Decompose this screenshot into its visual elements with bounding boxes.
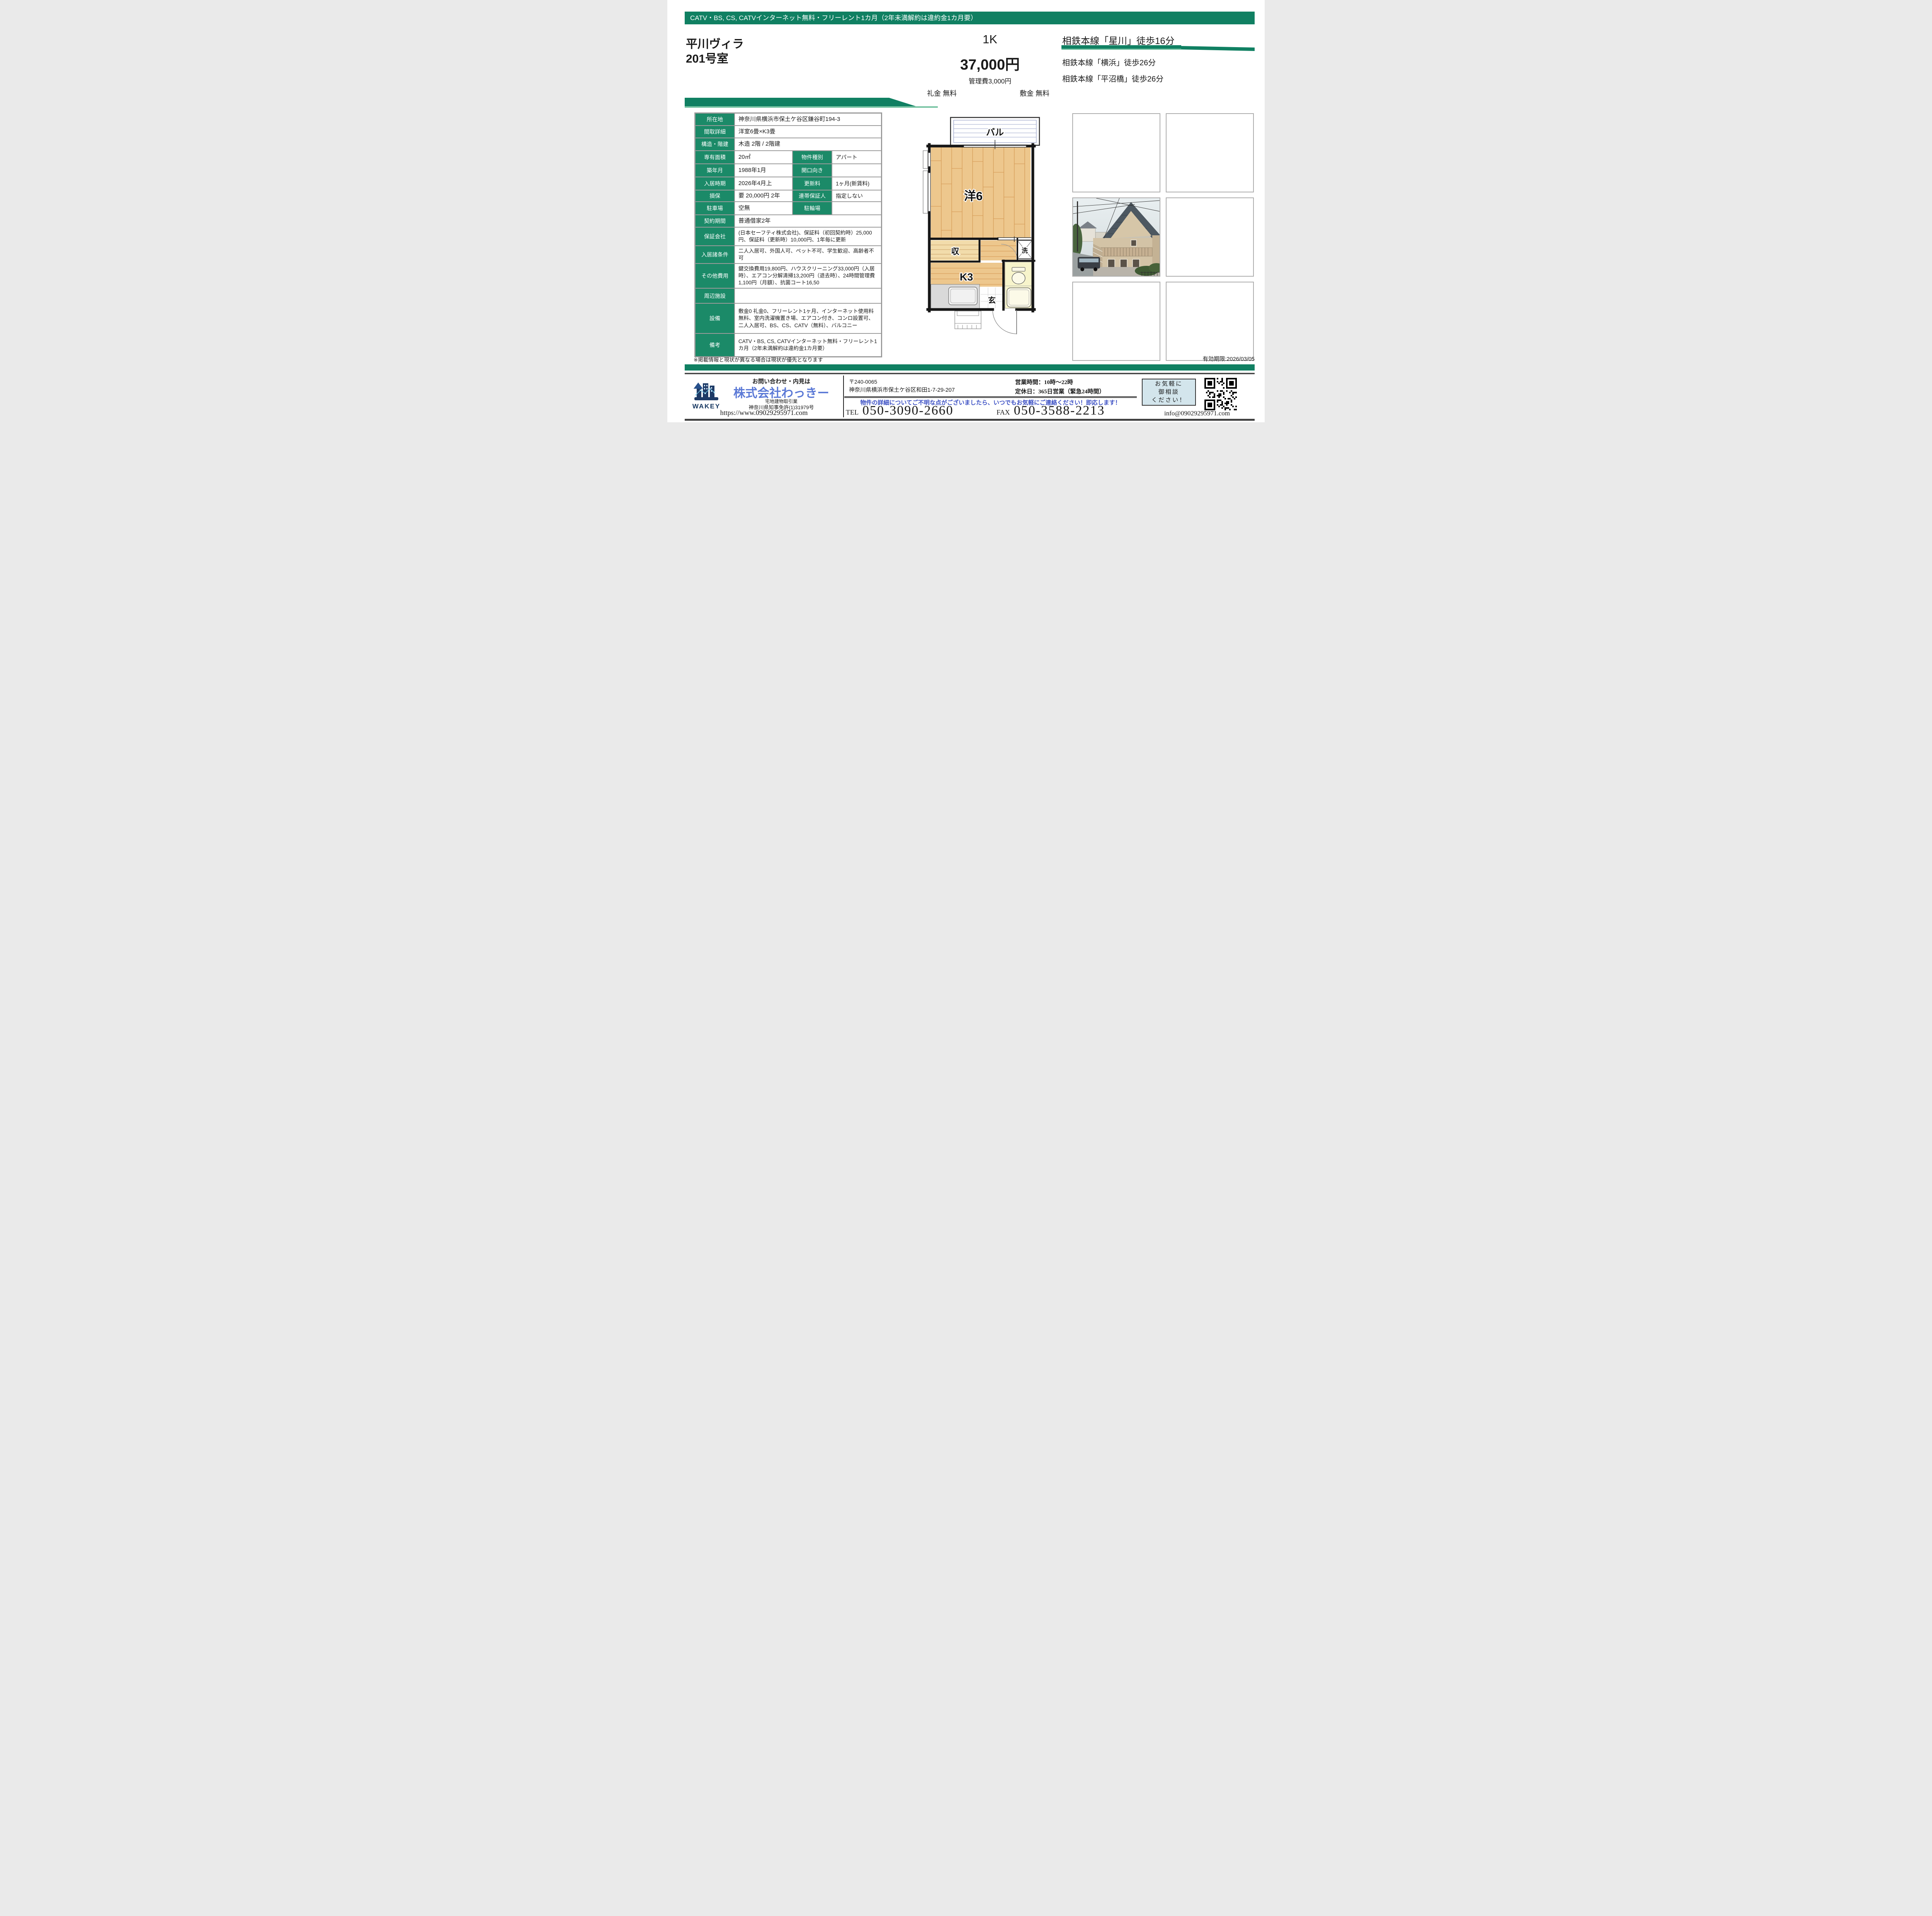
flyer-page: CATV・BS, CS, CATVインターネット無料・フリーレント1カ月（2年未… xyxy=(667,0,1265,422)
station-secondary: 相鉄本線「横浜」徒歩26分 xyxy=(1062,56,1156,68)
photo-slot-exterior xyxy=(1072,197,1160,277)
row-header: 築年月 xyxy=(696,164,734,177)
photo-slot-empty-2 xyxy=(1166,113,1254,192)
row-header: 周辺施設 xyxy=(696,289,734,303)
bottom-rule xyxy=(685,419,1255,421)
row-header: 設備 xyxy=(696,304,734,333)
row-value: (日本セーフティ株式会社)、保証料（初回契約時）25,000円、保証料（更新時）… xyxy=(735,228,881,245)
row-value: 洋室6畳×K3畳 xyxy=(735,126,881,138)
row-value: 神奈川県横浜市保土ケ谷区鎌谷町194-3 xyxy=(735,114,881,125)
property-name-line1: 平川ヴィラ xyxy=(686,37,744,52)
row-header: 所在地 xyxy=(696,114,734,125)
station-tertiary: 相鉄本線「平沼橋」徒歩26分 xyxy=(1062,73,1163,84)
closet-label: 収 xyxy=(951,247,960,256)
table-row: 入居時期2026年4月上更新料1ヶ月(新賃料) xyxy=(696,177,881,190)
property-photo xyxy=(1073,198,1160,276)
table-row: 契約期間普通借家2年 xyxy=(696,215,881,227)
row-value: 空無 xyxy=(735,202,792,214)
row-value: 要 20,000円 2年 xyxy=(735,190,792,201)
row-header: 駐車場 xyxy=(696,202,734,214)
fax-group: FAX 050-3588-2213 xyxy=(997,403,1105,418)
qr-code-icon xyxy=(1204,378,1237,410)
row-header: 更新料 xyxy=(793,177,832,190)
row-value xyxy=(832,202,881,214)
row-header: 専有面積 xyxy=(696,151,734,163)
row-header: 入居諸条件 xyxy=(696,246,734,263)
row-value: 指定しない xyxy=(832,190,881,201)
rent-amount: 37,000円 xyxy=(918,53,1061,74)
management-fee: 管理費3,000円 xyxy=(934,76,1046,85)
row-header: 物件種別 xyxy=(793,151,832,163)
disclaimer-note: ※掲載情報と現状が異なる場合は現状が優先となります xyxy=(694,355,823,363)
tel-label: TEL xyxy=(846,408,859,417)
balcony-label: バル xyxy=(986,127,1004,137)
station-underline-decoration xyxy=(1061,45,1255,51)
row-header: 備考 xyxy=(696,334,734,356)
row-header: 損保 xyxy=(696,190,734,201)
table-row: 備考CATV・BS, CS, CATVインターネット無料・フリーレント1カ月（2… xyxy=(696,334,881,356)
row-value: 敷金0 礼金0、フリーレント1ヶ月、インターネット使用料無料、室内洗濯機置き場、… xyxy=(735,304,881,333)
row-value: 1ヶ月(新賃料) xyxy=(832,177,881,190)
expiry-date: 有効期限:2026/03/05 xyxy=(1146,355,1255,363)
table-row: 構造・階建木造 2階 / 2階建 xyxy=(696,138,881,150)
row-value: 木造 2階 / 2階建 xyxy=(735,138,881,150)
header-green-band xyxy=(685,97,940,109)
consult-line2: 御相談 xyxy=(1158,388,1179,396)
entrance-label: 玄 xyxy=(988,296,996,305)
photo-slot-empty-4 xyxy=(1072,282,1160,361)
footer-green-bar xyxy=(685,364,1255,371)
washer-box: 洗 xyxy=(1017,240,1032,259)
row-header: 連帯保証人 xyxy=(793,190,832,201)
company-logo-icon xyxy=(693,379,720,402)
consult-line1: お気軽に xyxy=(1155,380,1183,388)
top-banner: CATV・BS, CS, CATVインターネット無料・フリーレント1カ月（2年未… xyxy=(685,12,1255,24)
row-header: 駐輪場 xyxy=(793,202,832,214)
floor-plan: バル 洋6 収 K3 玄 xyxy=(904,114,1058,338)
photo-slot-empty-5 xyxy=(1166,282,1254,361)
row-value: 1988年1月 xyxy=(735,164,792,177)
row-value: 普通借家2年 xyxy=(735,215,881,227)
row-header: 構造・階建 xyxy=(696,138,734,150)
photo-slot-empty-1 xyxy=(1072,113,1160,192)
table-row: その他費用鍵交換費用19,800円、ハウスクリーニング33,000円（入居時）、… xyxy=(696,264,881,288)
table-row: 専有面積20㎡物件種別アパート xyxy=(696,151,881,163)
property-table: 所在地神奈川県横浜市保土ケ谷区鎌谷町194-3間取詳細洋室6畳×K3畳構造・階建… xyxy=(694,112,882,357)
row-value: 2026年4月上 xyxy=(735,177,792,190)
footer-top-rule xyxy=(685,373,1255,374)
row-header: 保証会社 xyxy=(696,228,734,245)
row-value xyxy=(832,164,881,177)
row-header: 開口向き xyxy=(793,164,832,177)
row-header: 契約期間 xyxy=(696,215,734,227)
table-row: 損保要 20,000円 2年連帯保証人指定しない xyxy=(696,190,881,201)
row-value xyxy=(735,289,881,303)
consult-line3: ください！ xyxy=(1151,396,1186,405)
holidays: 定休日：365日営業（緊急24時間） xyxy=(1015,387,1105,395)
kitchen-label: K3 xyxy=(960,271,973,283)
row-header: 間取詳細 xyxy=(696,126,734,138)
table-row: 駐車場空無駐輪場 xyxy=(696,202,881,214)
row-value: 20㎡ xyxy=(735,151,792,163)
property-name-line2: 201号室 xyxy=(686,52,744,66)
footer-divider xyxy=(843,376,844,417)
company-url-link[interactable]: https://www.09029295971.com xyxy=(685,409,843,417)
room-label: 洋6 xyxy=(964,189,983,203)
photo-slot-empty-3 xyxy=(1166,197,1254,277)
fax-number: 050-3588-2213 xyxy=(1014,403,1105,418)
consult-box: お気軽に 御相談 ください！ xyxy=(1142,379,1196,406)
washer-label: 洗 xyxy=(1022,247,1028,254)
table-row: 築年月1988年1月開口向き xyxy=(696,164,881,177)
property-name: 平川ヴィラ 201号室 xyxy=(686,37,744,66)
footer-mid-rule xyxy=(844,396,1137,398)
postal-code: 〒240-0065 xyxy=(849,378,877,386)
table-row: 保証会社(日本セーフティ株式会社)、保証料（初回契約時）25,000円、保証料（… xyxy=(696,228,881,245)
row-header: 入居時期 xyxy=(696,177,734,190)
fax-label: FAX xyxy=(997,408,1010,417)
station-primary: 相鉄本線「星川」徒歩16分 xyxy=(1062,33,1175,47)
deposit: 敷金 無料 xyxy=(1007,88,1063,98)
table-row: 周辺施設 xyxy=(696,289,881,303)
office-address: 神奈川県横浜市保土ケ谷区和田1-7-29-207 xyxy=(849,386,955,394)
table-row: 入居諸条件二人入居可、外国人可、ペット不可、学生歓迎、高齢者不可 xyxy=(696,246,881,263)
business-hours: 営業時間：10時～22時 xyxy=(1015,378,1073,386)
table-row: 間取詳細洋室6畳×K3畳 xyxy=(696,126,881,138)
row-value: CATV・BS, CS, CATVインターネット無料・フリーレント1カ月（2年未… xyxy=(735,334,881,356)
row-header: その他費用 xyxy=(696,264,734,288)
layout-type: 1K xyxy=(938,32,1042,46)
tel-group: TEL 050-3090-2660 xyxy=(846,403,954,418)
email-link[interactable]: info@09029295971.com xyxy=(1139,410,1255,417)
tel-number: 050-3090-2660 xyxy=(862,403,954,418)
table-row: 所在地神奈川県横浜市保土ケ谷区鎌谷町194-3 xyxy=(696,114,881,125)
row-value: 二人入居可、外国人可、ペット不可、学生歓迎、高齢者不可 xyxy=(735,246,881,263)
row-value: 鍵交換費用19,800円、ハウスクリーニング33,000円（入居時）、エアコン分… xyxy=(735,264,881,288)
row-value: アパート xyxy=(832,151,881,163)
table-row: 設備敷金0 礼金0、フリーレント1ヶ月、インターネット使用料無料、室内洗濯機置き… xyxy=(696,304,881,333)
